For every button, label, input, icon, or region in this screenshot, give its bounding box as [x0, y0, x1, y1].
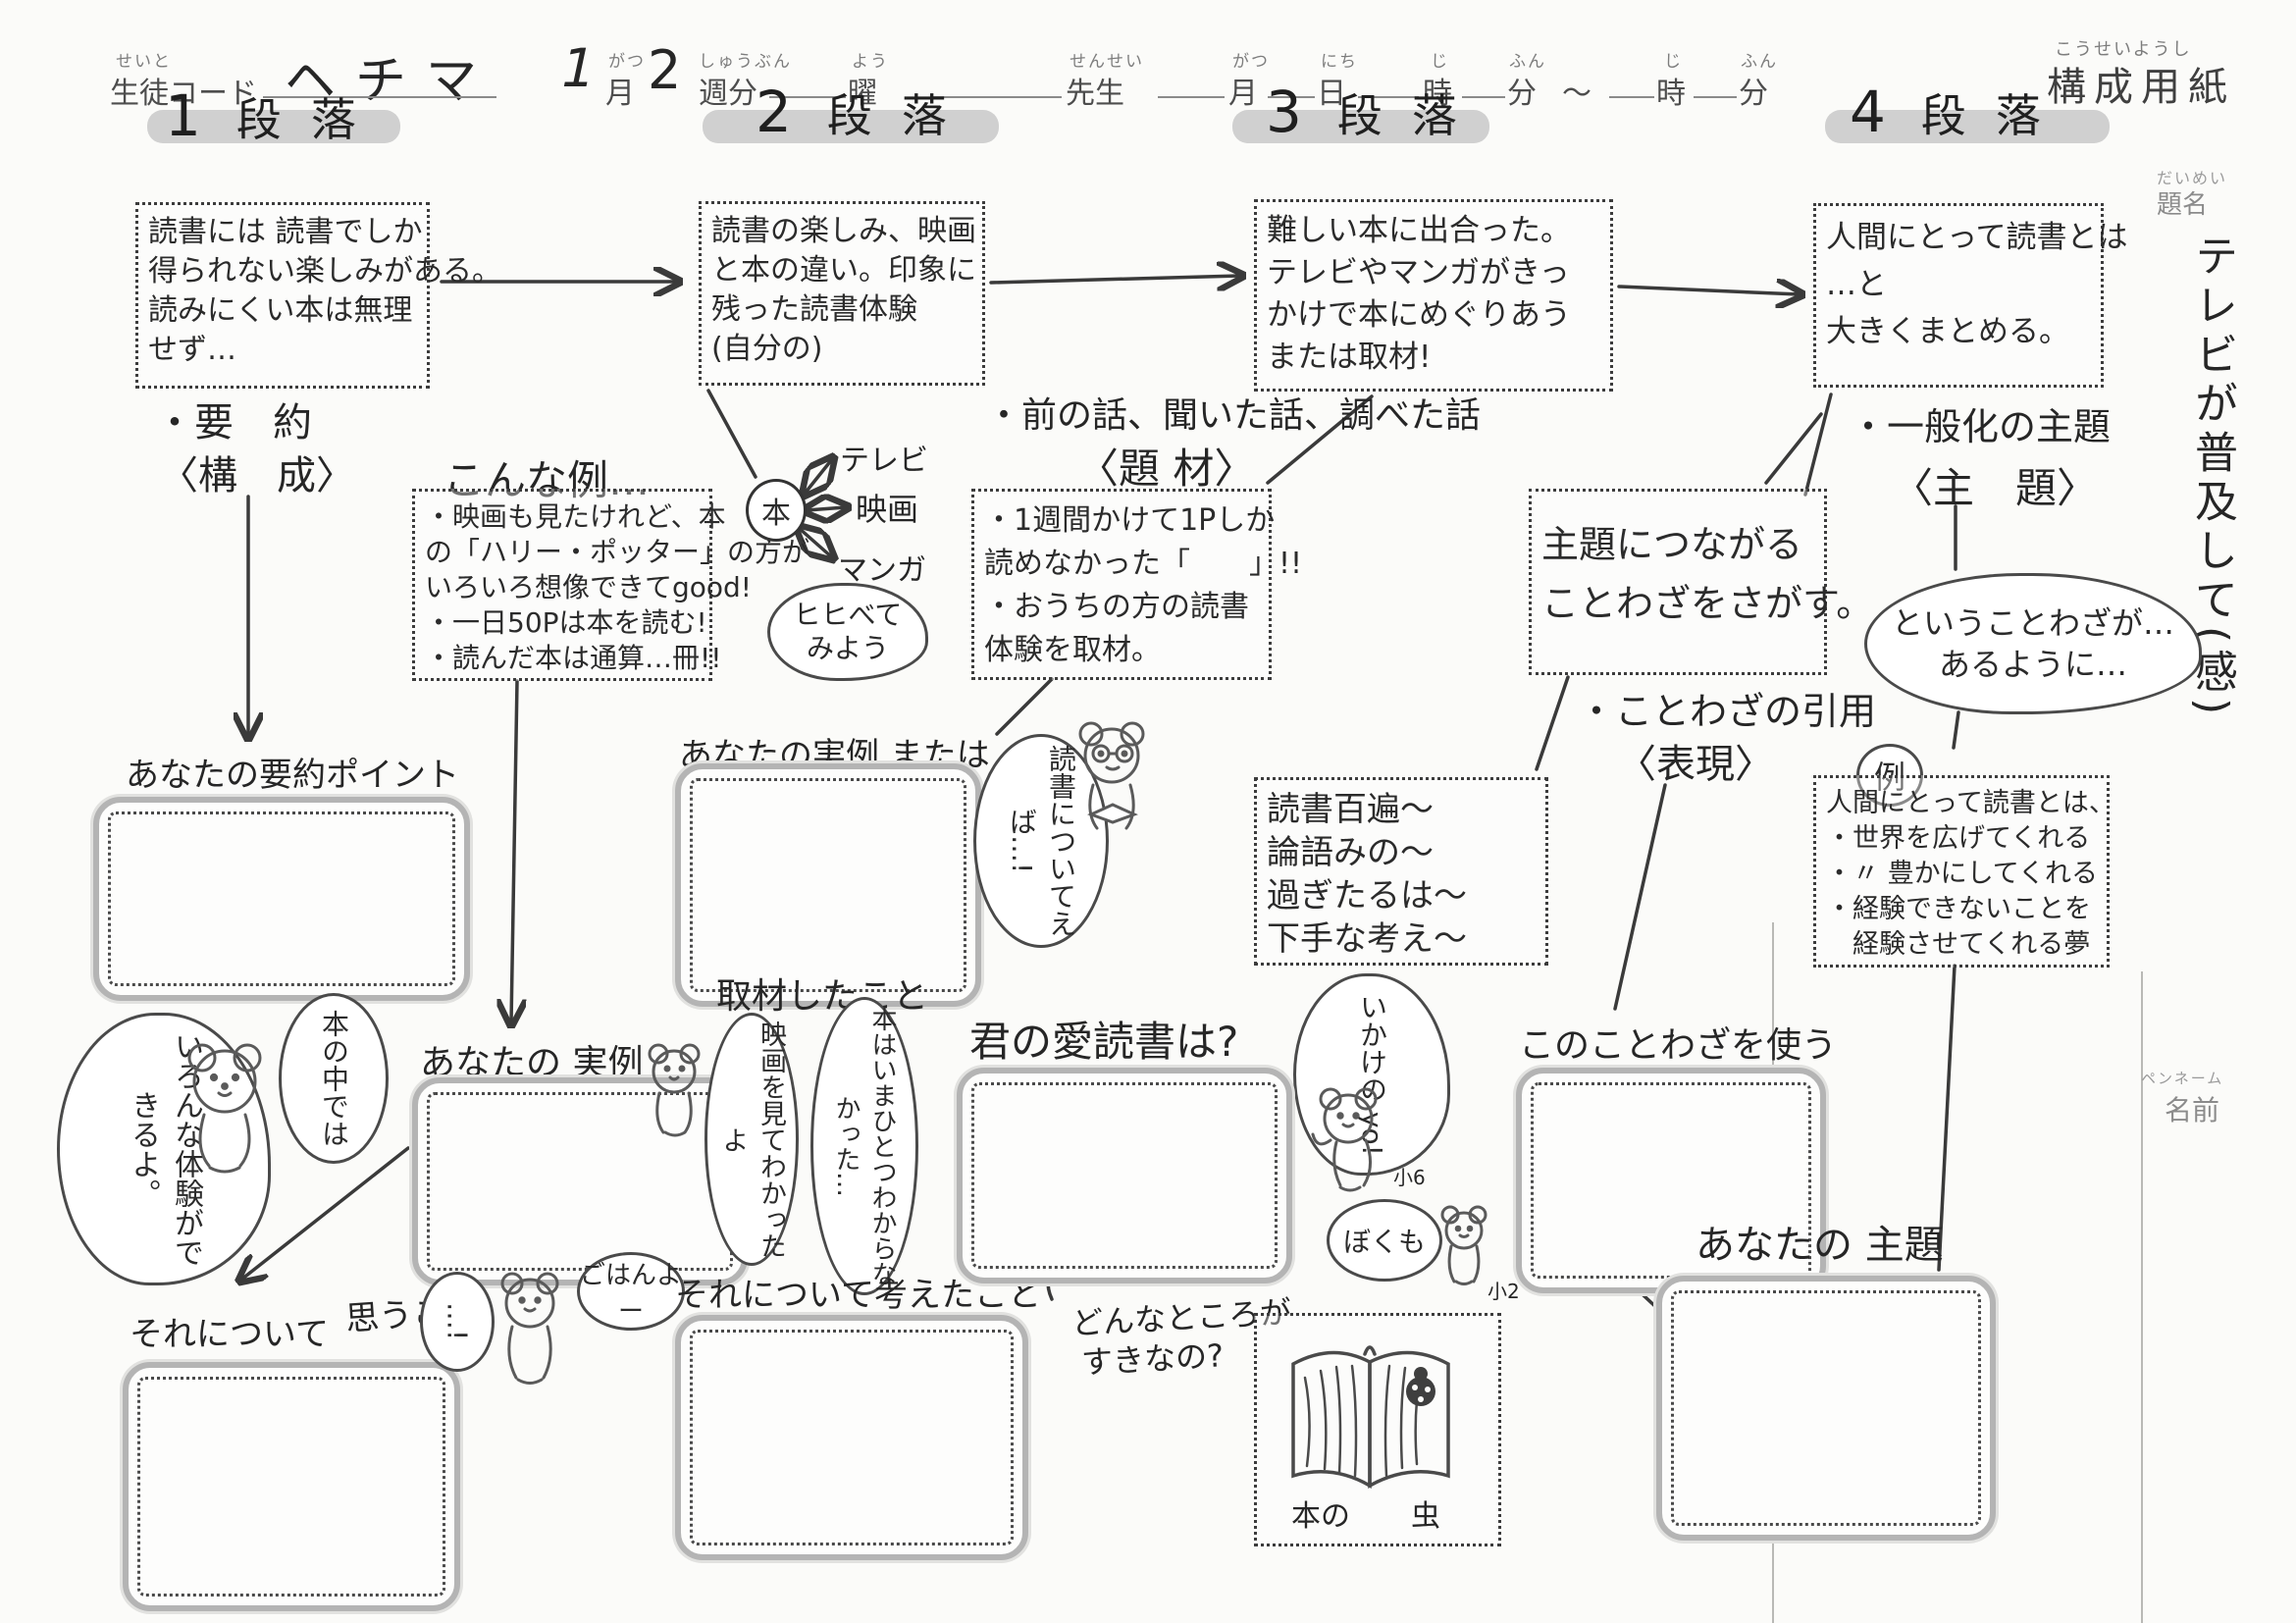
paragraph-label: 段落: [827, 80, 976, 145]
bear-doodle-sitting: [481, 1262, 579, 1391]
tv-label: テレビ: [840, 436, 928, 479]
month-label: 月: [605, 69, 635, 112]
paragraph-2-header: 2 段落: [756, 79, 976, 145]
movie-label: 映画: [856, 485, 918, 530]
time-minute2-label: 分: [1739, 69, 1768, 112]
text-line: (自分の): [711, 330, 972, 369]
paragraph-2-box: 読書の楽しみ、映画 と本の違い。印象に 残った読書体験 (自分の): [699, 201, 985, 386]
bear-doodle-small: [632, 1036, 716, 1142]
paragraph-number: 2: [756, 79, 792, 145]
proverb-quote-bullet: ・ことわざの引用: [1578, 681, 1876, 735]
text-line: 過ぎたるは〜: [1267, 874, 1536, 917]
proverb-list-box: 読書百遍〜 論語みの〜 過ぎたるは〜 下手な考え〜: [1254, 777, 1548, 966]
grade6-label: 小6: [1393, 1162, 1426, 1190]
date-month-label: 月: [1228, 69, 1258, 112]
teacher-label: 先生: [1066, 69, 1124, 112]
paragraph-3-box: 難しい本に出合った。 テレビやマンガがきっ かけで本にめぐりあう または取材!: [1254, 199, 1613, 392]
paragraph-label: 段落: [236, 84, 386, 149]
text-line: の「ハリー・ポッター」の方が: [425, 535, 700, 570]
book-node: 本: [746, 479, 807, 542]
proverb-search-box: 主題につながる ことわざをさがす。: [1529, 489, 1827, 675]
composition-sheet: せいと 生徒コード ヘチマ 1 がつ 月 2 しゅうぶん 週分 よう 曜 せんせ…: [0, 0, 2296, 1623]
paragraph-number: 3: [1266, 79, 1302, 145]
generalized-theme-bullet: ・一般化の主題: [1850, 396, 2111, 450]
underline: [1694, 96, 1737, 98]
text-line: 読書の楽しみ、映画: [711, 212, 972, 251]
text-line: 読めなかった「 」!!: [984, 543, 1259, 586]
text-line: または取材!: [1267, 337, 1600, 379]
text-line: 体験を取材。: [984, 629, 1259, 672]
text-line: ・経験できないことを: [1826, 892, 2097, 927]
text-line: 難しい本に出合った。: [1267, 210, 1600, 252]
text-line: ・おうちの方の読書: [984, 586, 1259, 629]
expression-label: 〈表現〉: [1617, 732, 1774, 789]
text-line: と本の違い。印象に: [711, 251, 972, 290]
furigana-penname: ペンネーム: [2141, 1068, 2223, 1088]
which-part-line2: すきなの?: [1080, 1331, 1225, 1384]
bubble-gohan: ごはんよー: [577, 1252, 685, 1331]
text-line: ヒヒべて: [794, 599, 903, 632]
bookworm-label-2: 虫: [1411, 1492, 1440, 1535]
paragraph-1-header: 1 段落: [165, 82, 386, 149]
answer-box-summary-point: [93, 797, 470, 1001]
answer-box-favorite-book: [957, 1068, 1292, 1283]
text-line: ・〃 豊かにしてくれる: [1826, 857, 2097, 892]
example-list-box: ・映画も見たけれど、本 の「ハリー・ポッター」の方が いろいろ想像できてgood…: [412, 489, 712, 681]
ladybug: [1406, 1367, 1435, 1406]
text-line: 読みにくい本は無理: [148, 291, 417, 331]
sheet-title: 構成用紙: [2047, 55, 2235, 112]
text-line: 大きくまとめる。: [1826, 308, 2091, 355]
text-line: ・世界を広げてくれる: [1826, 821, 2097, 857]
title-field-label: 題名: [2157, 184, 2208, 221]
paragraph-1-box: 読書には 読書でしか 得られない楽しみがある。 読みにくい本は無理 せず…: [135, 202, 430, 389]
text-line: …と: [1826, 261, 2091, 308]
tilde: 〜: [1562, 69, 1592, 112]
answer-box-thoughts-col2: [675, 1315, 1028, 1560]
text-line: 経験させてくれる夢: [1826, 927, 2097, 963]
bubble-honno-naka: 本の中では: [279, 993, 389, 1164]
daizai-box: ・1週間かけて1Pしか 読めなかった「 」!! ・おうちの方の読書 体験を取材。: [971, 489, 1272, 680]
text-line: いろいろ想像できてgood!: [425, 570, 700, 605]
paragraph-number: 1: [165, 82, 201, 149]
text-line: ・映画も見たけれど、本: [425, 499, 700, 535]
summary-bullet: ・要 約: [155, 391, 312, 447]
bookworm-label-1: 本の: [1291, 1492, 1350, 1535]
structure-label: 〈構 成〉: [159, 444, 355, 500]
underline: [1609, 96, 1654, 98]
your-theme-label: あなたの 主題: [1696, 1213, 1944, 1270]
paragraph-label: 段落: [1337, 80, 1487, 145]
text-line: 主題につながる: [1541, 515, 1814, 574]
text-line: ・一日50Pは本を読む!: [425, 605, 700, 641]
text-line: ・読んだ本は通算…冊!!: [425, 641, 700, 676]
text-line: せず…: [148, 331, 417, 370]
text-line: ・1週間かけて1Pしか: [984, 499, 1259, 543]
bear-doodle-tiny: [1425, 1199, 1503, 1293]
text-line: 残った読書体験: [711, 290, 972, 330]
topic-sources-note: ・前の話、聞いた話、調べた話: [986, 387, 1481, 438]
text-line: 人間にとって読書とは: [1826, 214, 2091, 261]
text-line: あるように…: [1939, 644, 2127, 685]
time-hour2-label: 時: [1656, 69, 1686, 112]
text-line: ということわざが…: [1892, 602, 2174, 644]
time-minute-label: 分: [1507, 69, 1537, 112]
name-field-label: 名前: [2165, 1089, 2219, 1128]
answer-box-your-theme: [1656, 1276, 1996, 1541]
text-line: 論語みの〜: [1267, 831, 1536, 874]
text-line: かけで本にめぐりあう: [1267, 294, 1600, 337]
use-proverb-label: このことわざを使う: [1519, 1017, 1837, 1068]
paragraph-label: 段落: [1921, 80, 2070, 145]
text-line: 得られない楽しみがある。: [148, 252, 417, 291]
bear-doodle-waving: [1297, 1077, 1395, 1197]
paragraph-3-header: 3 段落: [1266, 79, 1487, 145]
text-line: みよう: [807, 632, 889, 665]
essay-title-vertical: テレビが普及して(感): [2180, 234, 2243, 812]
about-it-label: それについて: [130, 1307, 329, 1355]
text-line: ことわざをさがす。: [1541, 574, 1814, 633]
paragraph-number: 4: [1850, 79, 1886, 145]
week-label: 週分: [699, 69, 757, 112]
example-theme-box: 人間にとって読書とは、 ・世界を広げてくれる ・〃 豊かにしてくれる ・経験でき…: [1813, 775, 2110, 968]
underline: [1158, 96, 1225, 98]
theme-label: 〈主 題〉: [1892, 455, 2098, 515]
summary-point-label: あなたの要約ポイント: [126, 748, 459, 796]
text-line: 人間にとって読書とは、: [1826, 786, 2097, 821]
bear-doodle: [165, 1032, 283, 1179]
bear-professor-doodle: [1058, 712, 1168, 852]
text-line: 読書百遍〜: [1267, 788, 1536, 831]
paragraph-4-box: 人間にとって読書とは …と 大きくまとめる。: [1813, 203, 2104, 388]
text-line: 下手な考え〜: [1267, 917, 1536, 961]
daizai-label: 〈題 材〉: [1077, 436, 1255, 496]
bubble-eiga: 映画を見てわかったよ: [704, 1013, 799, 1266]
answer-box-thoughts: [123, 1362, 460, 1611]
week-value: 2: [648, 39, 681, 101]
book-ladybug-doodle: [1274, 1327, 1470, 1493]
text-line: 読書には 読書でしか: [148, 213, 417, 252]
paragraph-4-header: 4 段落: [1850, 79, 2070, 145]
bubble-hon-imahitotsu: 本はいまひとつわからなかった…: [810, 997, 918, 1295]
favorite-book-label: 君の愛読書は?: [969, 1009, 1238, 1069]
bubble-compare: ヒヒべて みよう: [767, 583, 928, 681]
text-line: テレビやマンガがきっ: [1267, 252, 1600, 294]
